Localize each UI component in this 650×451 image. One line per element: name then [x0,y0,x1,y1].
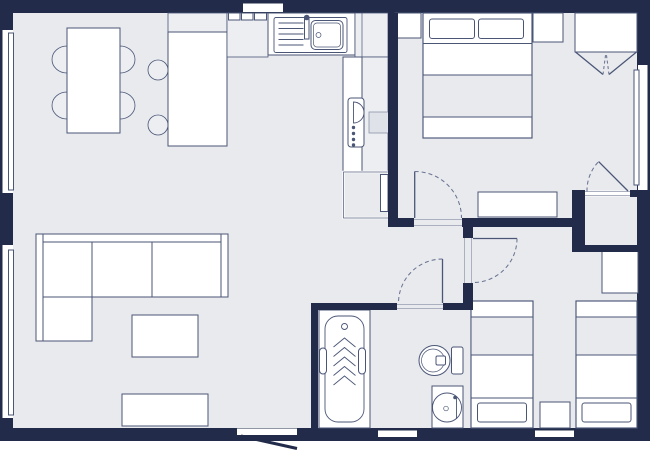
nightstand [540,402,570,428]
single-bed-left [471,301,533,428]
dining-table [67,28,120,133]
cooktop-module [255,13,267,20]
oven-knob [352,143,355,146]
bathtub [319,310,370,428]
sofa-cushion [43,242,92,297]
vanity-basin [432,386,463,428]
bed-blanket-band [472,317,533,355]
pillow [430,19,475,39]
single-bed-right [576,301,637,428]
bed-blanket-band [577,317,637,355]
coffee-table [132,315,198,357]
wardrobe-body [575,13,637,52]
nightstand-right [533,13,563,42]
nightstand-left [395,13,421,38]
window-glass [634,70,639,185]
sofa-cushion [152,242,221,297]
left-window-lower [3,245,14,418]
sofa-chaise [43,297,92,341]
base-cabinet-panel [381,175,389,212]
pillow [582,403,631,422]
grab-bar [359,348,366,374]
sofa-cushion [92,242,152,297]
bedroom1-south-wall [388,218,414,227]
bar-stool [148,60,168,80]
pillow [479,19,524,39]
bedroom1-south-wall [462,218,572,227]
built-in-appliance [369,112,389,133]
double-bed [423,13,532,138]
bed-blanket-band [424,75,532,117]
closet-south-wall [572,245,650,252]
oven [348,98,364,147]
floor-plan-canvas [0,0,650,451]
bottom-wall-vent [378,431,417,438]
toilet [419,346,463,376]
bedroom2-west-wall [463,218,473,238]
closet-north-wall [630,190,650,197]
left-window-upper [3,30,14,193]
kitchen-island [168,32,227,146]
floor-plan [0,0,650,451]
bathroom-north-wall [443,303,473,310]
faucet-body [305,18,310,39]
sofa-armrest-left [36,234,43,341]
bar-stool [148,115,168,135]
corner-counter [355,13,388,57]
faucet-head [304,15,310,21]
oven-knob [352,138,355,141]
sink-unit [268,13,355,55]
bathroom-west-wall [311,303,318,428]
grab-bar [320,348,327,374]
window-glass [9,33,14,190]
sofa-armrest-right [221,234,228,297]
oven-knob [352,132,355,135]
dresser [478,192,557,217]
island-counter-top [168,13,227,32]
toilet-tank [452,347,464,374]
cooktop-module [229,13,241,20]
sofa-back [43,234,221,242]
toilet-flush [436,356,446,365]
right-window [634,65,648,190]
bottom-wall-vent [535,431,574,438]
closet-west-wall [572,190,585,252]
entrance-opening [237,429,297,436]
bathroom-north-wall [311,303,397,310]
basin-tap [453,396,457,400]
kitchen-bedroom1-wall [388,13,398,227]
pillow [478,403,527,422]
tv-sideboard [122,394,208,426]
window-glass [9,250,14,415]
cooktop-module [242,13,254,20]
top-wall-vent [243,4,283,13]
corner-cabinet [602,250,638,293]
oven-knob [352,126,355,129]
